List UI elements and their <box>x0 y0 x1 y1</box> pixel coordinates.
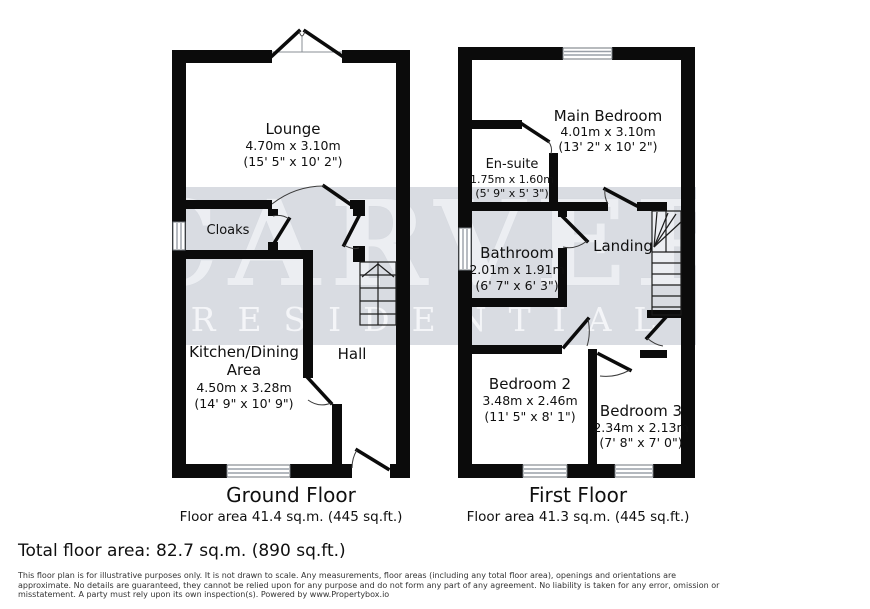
window-icon <box>523 465 567 477</box>
door-icon <box>272 186 350 204</box>
hall-label: Hall <box>338 345 367 363</box>
ground-floor-area: Floor area 41.4 sq.m. (445 sq.ft.) <box>151 509 431 525</box>
kitchen-imperial: (14' 9" x 10' 9") <box>194 396 293 411</box>
disclaimer-text: This floor plan is for illustrative purp… <box>18 571 719 600</box>
bay-window-icon <box>272 31 342 56</box>
disclaimer-line2: approximate. No details are guaranteed, … <box>18 581 719 591</box>
first-floor-area: Floor area 41.3 sq.m. (445 sq.ft.) <box>438 509 718 525</box>
door-icon <box>605 189 637 206</box>
kitchen-metric: 4.50m x 3.28m <box>196 380 291 395</box>
bedroom3-imperial: (7' 8" x 7' 0") <box>599 435 682 450</box>
door-icon <box>563 217 587 248</box>
lounge-metric: 4.70m x 3.10m <box>245 138 340 153</box>
ensuite-imperial: (5' 9" x 5' 3") <box>475 187 548 200</box>
ground-stairs-icon <box>360 262 396 325</box>
ensuite-label: En-suite <box>486 157 539 172</box>
ground-interior-walls <box>172 200 365 464</box>
door-icon <box>352 450 388 469</box>
door-icon <box>647 316 667 346</box>
floorplan-drawing: Lounge 4.70m x 3.10m (15' 5" x 10' 2") C… <box>0 0 870 540</box>
cloaks-label: Cloaks <box>207 223 250 238</box>
door-icon <box>344 216 359 249</box>
bedroom3-metric: 2.34m x 2.13m <box>593 420 688 435</box>
bathroom-label: Bathroom <box>480 244 554 262</box>
main-bedroom-label: Main Bedroom <box>554 107 662 125</box>
main-bedroom-imperial: (13' 2" x 10' 2") <box>558 139 657 154</box>
bedroom2-imperial: (11' 5" x 8' 1") <box>484 409 575 424</box>
window-icon <box>563 48 612 59</box>
bathroom-imperial: (6' 7" x 6' 3") <box>475 278 558 293</box>
bedroom2-metric: 3.48m x 2.46m <box>482 393 577 408</box>
total-floor-area: Total floor area: 82.7 sq.m. (890 sq.ft.… <box>18 541 346 561</box>
first-floor-plan: Main Bedroom 4.01m x 3.10m (13' 2" x 10'… <box>458 47 695 478</box>
bedroom2-label: Bedroom 2 <box>489 375 571 393</box>
first-room-labels: Main Bedroom 4.01m x 3.10m (13' 2" x 10'… <box>469 107 688 450</box>
lounge-label: Lounge <box>265 120 320 138</box>
door-icon <box>564 319 589 347</box>
door-icon <box>273 215 289 245</box>
bedroom3-label: Bedroom 3 <box>600 402 682 420</box>
window-icon <box>615 465 653 477</box>
ensuite-metric: 1.75m x 1.60m <box>470 173 554 186</box>
door-icon <box>599 354 630 376</box>
landing-label: Landing <box>593 237 653 255</box>
ground-outer-walls <box>172 50 410 478</box>
window-icon <box>173 222 185 250</box>
main-bedroom-metric: 4.01m x 3.10m <box>560 124 655 139</box>
door-icon <box>522 124 552 154</box>
ground-floor-plan: Lounge 4.70m x 3.10m (15' 5" x 10' 2") C… <box>172 31 410 478</box>
floorplan-page: CARVER RESIDENTIAL <box>0 0 870 609</box>
disclaimer-line1: This floor plan is for illustrative purp… <box>18 571 719 581</box>
ground-doors <box>272 186 388 469</box>
kitchen-label-line2: Area <box>227 361 262 379</box>
bathroom-metric: 2.01m x 1.91m <box>469 262 564 277</box>
ground-room-labels: Lounge 4.70m x 3.10m (15' 5" x 10' 2") C… <box>189 120 366 411</box>
first-floor-title: First Floor <box>458 483 698 507</box>
first-stairs-icon <box>652 211 681 315</box>
kitchen-label-line1: Kitchen/Dining <box>189 343 299 361</box>
disclaimer-line3: misstatement. A party must rely upon its… <box>18 590 719 600</box>
lounge-imperial: (15' 5" x 10' 2") <box>243 154 342 169</box>
window-icon <box>227 465 290 477</box>
ground-floor-title: Ground Floor <box>171 483 411 507</box>
door-icon <box>308 378 331 405</box>
